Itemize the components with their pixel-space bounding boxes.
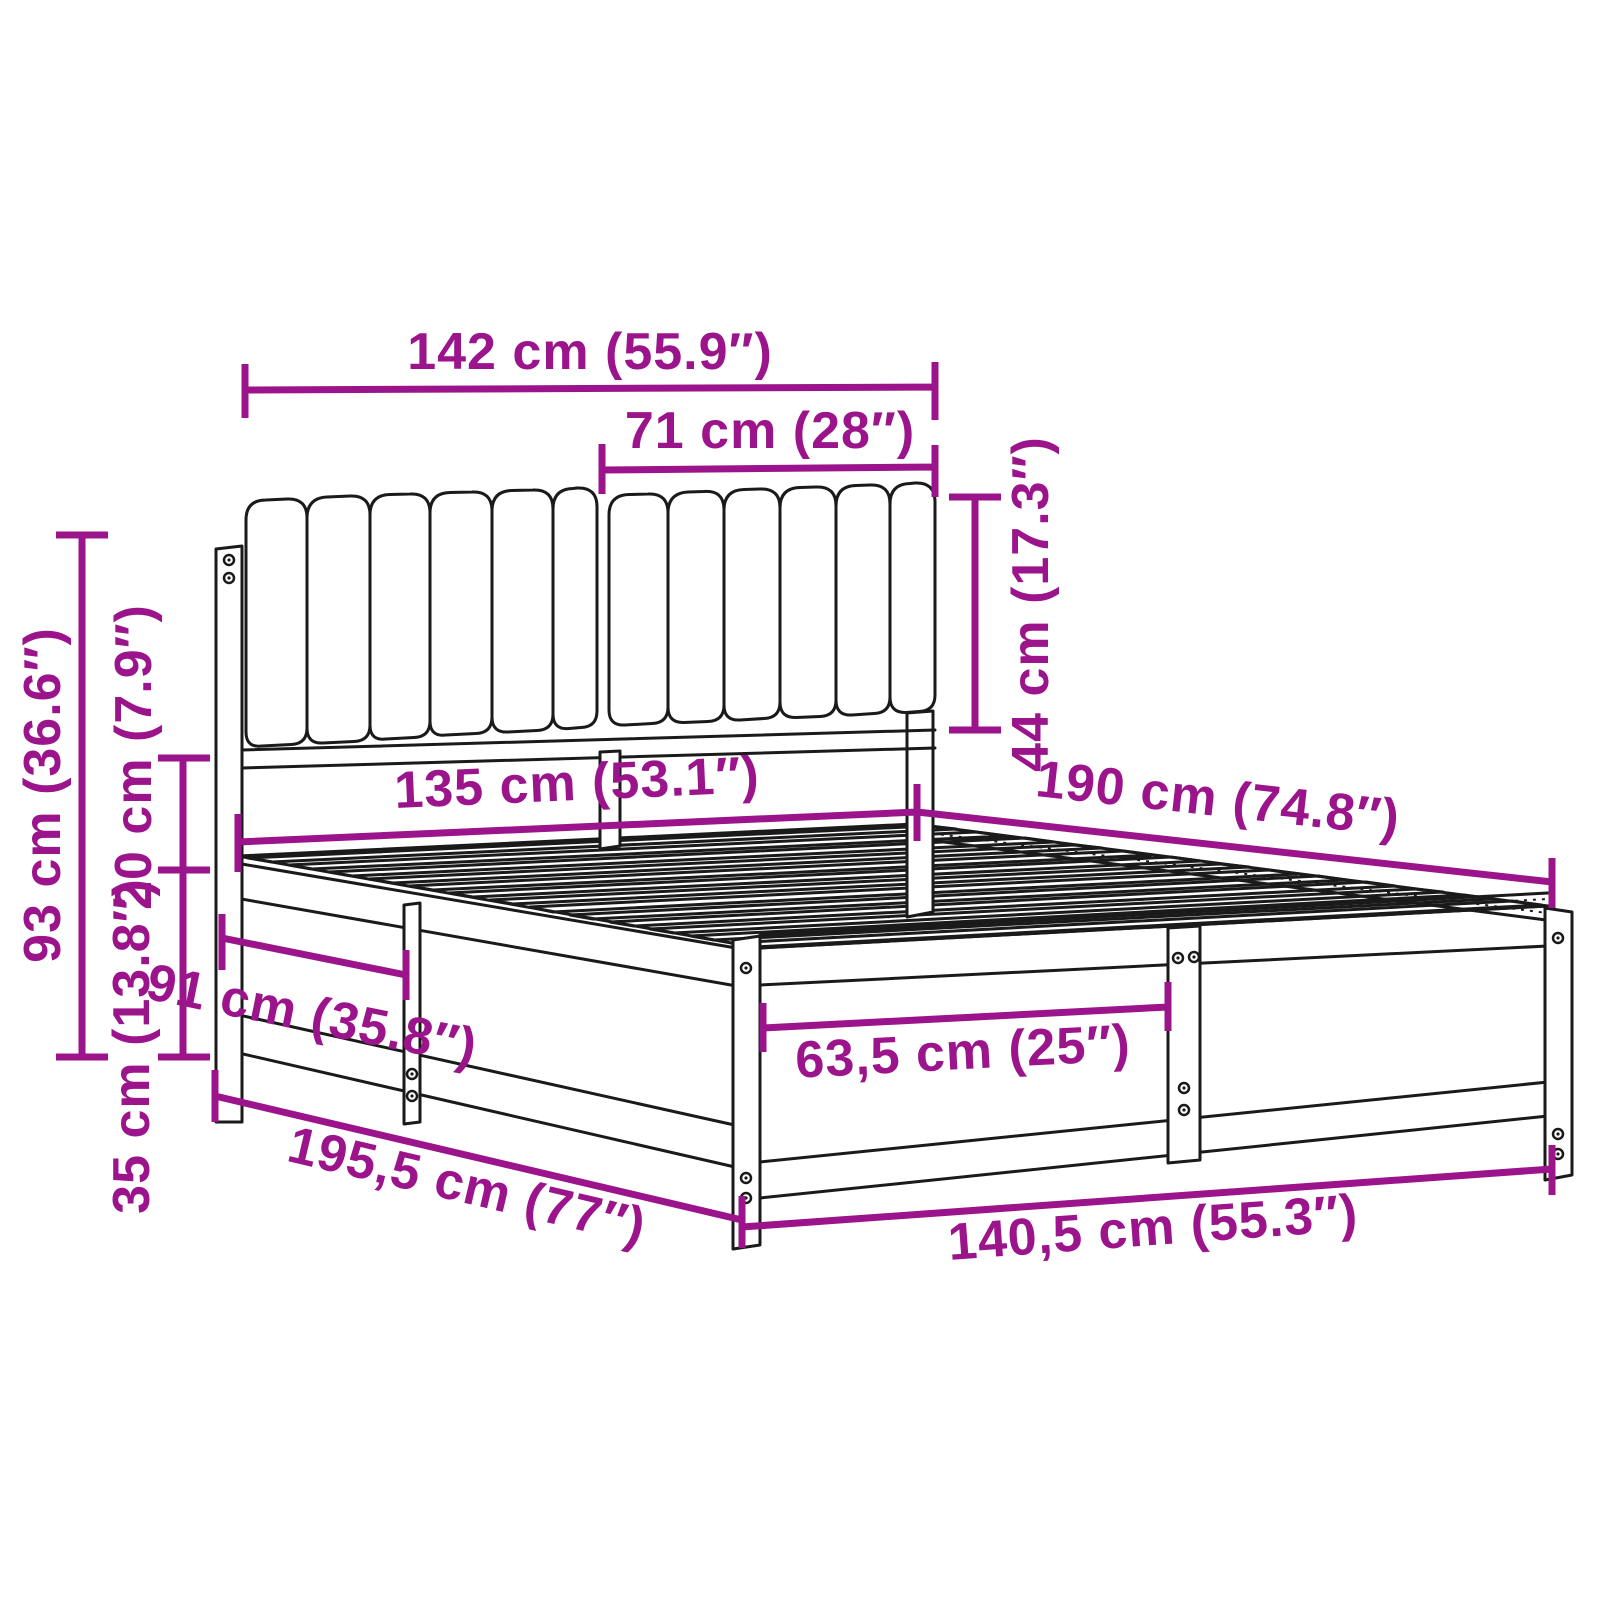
cushion-right-section [609,483,935,725]
front-lower-rail-top [760,1082,1548,1162]
front-bottom-edge [760,1116,1548,1198]
cushion-left-section [246,488,597,746]
front-top-rail-bottom [760,946,1548,985]
dim-headboard-width-label: 142 cm (55.9″) [407,322,773,382]
dim-cushion-gap-height-label: 20 cm (7.9″) [104,604,164,910]
bed-drawing [216,483,1572,1249]
diagram-canvas: 142 cm (55.9″) 71 cm (28″) 44 cm (17.3″)… [0,0,1600,1600]
dim-frame-side-height-label: 35 cm (13.8″) [102,878,162,1214]
dim-headboard-total-height-label: 93 cm (36.6″) [13,627,73,963]
dim-cushion-height-label: 44 cm (17.3″) [1001,436,1061,772]
dim-cushion-height-line [949,497,1001,730]
dim-headboard-half-width-label: 71 cm (28″) [625,401,915,461]
front-left-post [733,936,760,1249]
